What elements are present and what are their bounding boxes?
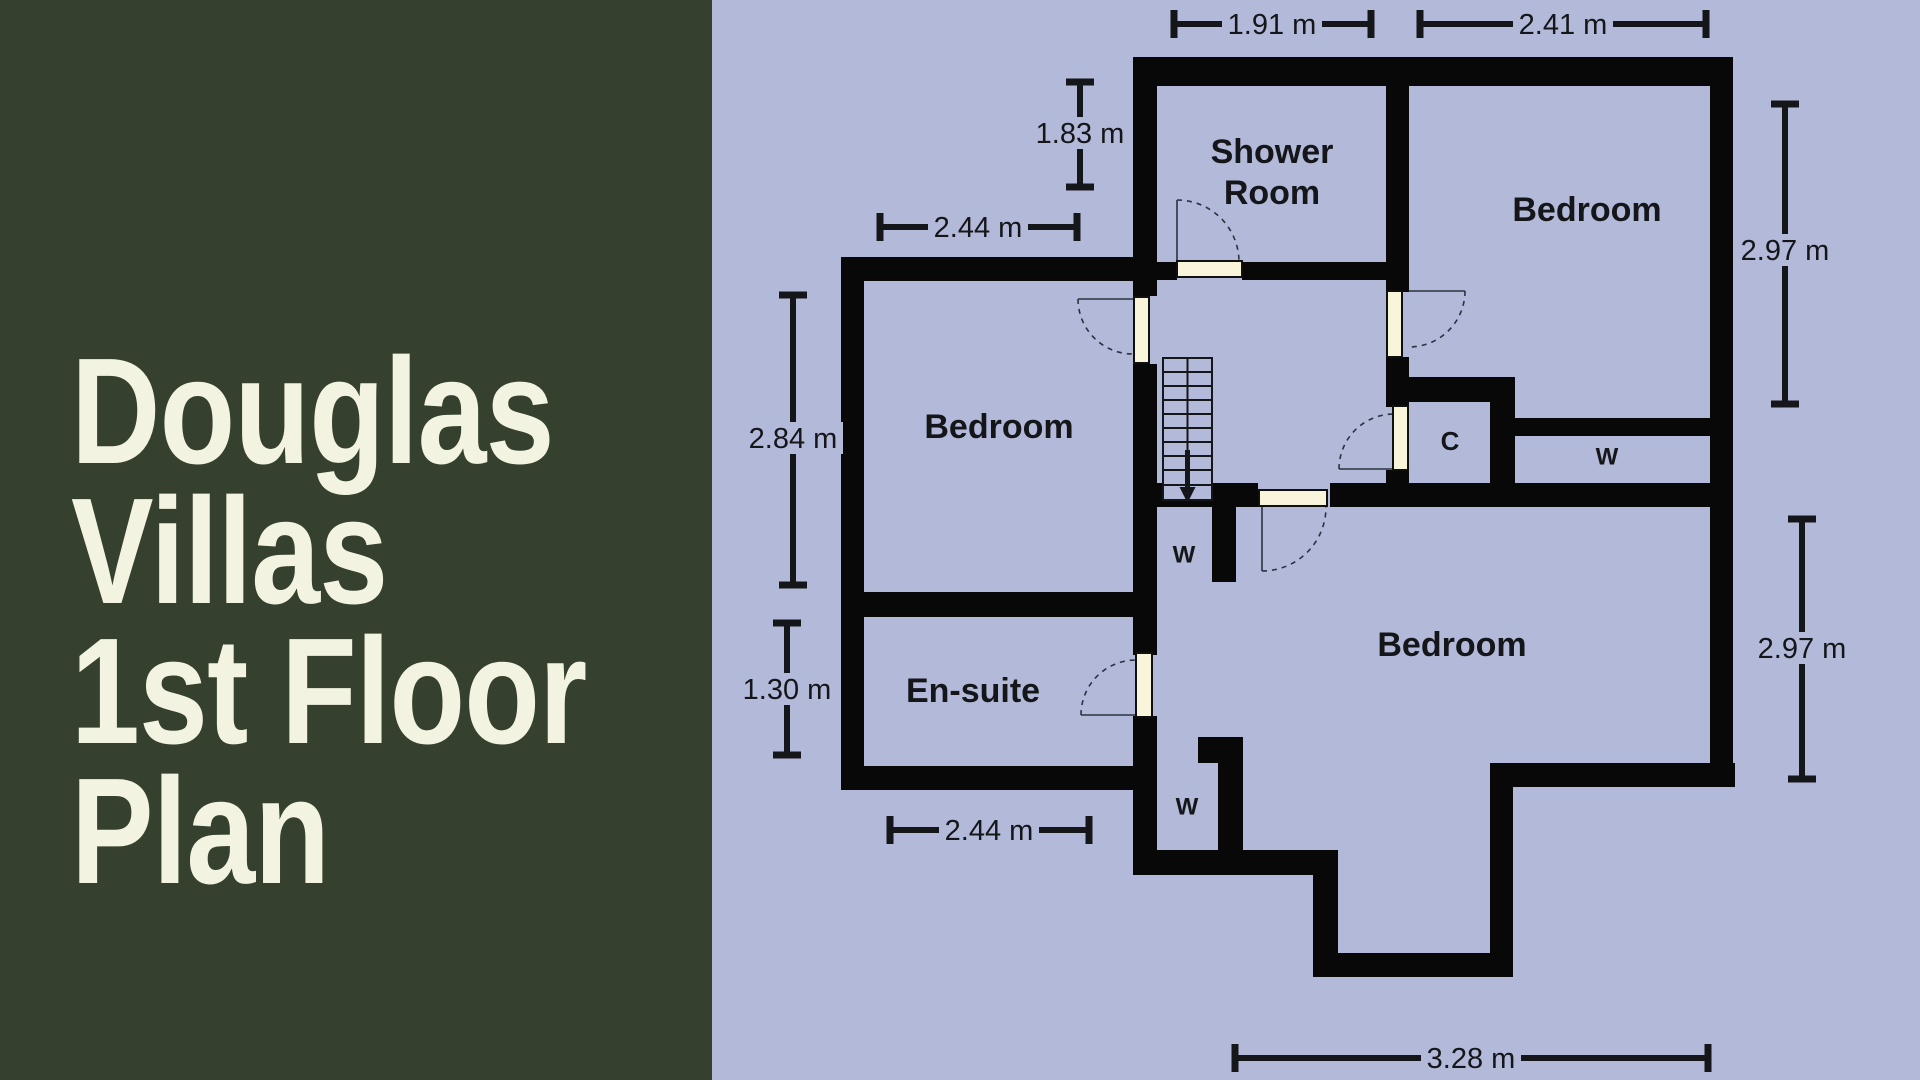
ensuite-door bbox=[1136, 653, 1152, 717]
dimension-label: 2.41 m bbox=[1519, 9, 1608, 41]
dim-bedroom-bottom-depth: 2.97 m bbox=[1752, 519, 1852, 779]
dim-shower-depth: 1.83 m bbox=[1030, 82, 1130, 187]
dimension-label: 3.28 m bbox=[1427, 1043, 1516, 1075]
dimension-label: 1.91 m bbox=[1228, 9, 1317, 41]
dim-bedroom-right-depth: 2.97 m bbox=[1735, 104, 1835, 404]
bedroom-right-label: Bedroom bbox=[1512, 191, 1661, 229]
dimension-label: 1.30 m bbox=[743, 674, 832, 706]
dim-bedroom-right-width: 2.41 m bbox=[1420, 7, 1706, 41]
shower-room-label-line2: Room bbox=[1224, 174, 1320, 212]
wardrobe-right-label: W bbox=[1596, 444, 1619, 471]
closet-label: C bbox=[1441, 426, 1460, 456]
bedroom-left-door bbox=[1134, 297, 1149, 363]
shower-room-label-line1: Shower bbox=[1211, 133, 1334, 171]
ensuite-label: En-suite bbox=[906, 672, 1040, 710]
dim-bedroom-left-width: 2.44 m bbox=[880, 210, 1077, 244]
dimension-label: 2.84 m bbox=[749, 423, 838, 455]
bedroom-left-label: Bedroom bbox=[924, 408, 1073, 446]
dimension-label: 2.97 m bbox=[1741, 235, 1830, 267]
dimension-label: 2.44 m bbox=[945, 815, 1034, 847]
bedroom-bottom-door bbox=[1259, 490, 1327, 506]
dimension-label: 2.97 m bbox=[1758, 633, 1847, 665]
dim-bedroom-bottom-width: 3.28 m bbox=[1235, 1041, 1708, 1075]
dim-bedroom-left-depth: 2.84 m bbox=[743, 295, 843, 585]
dimension-label: 1.83 m bbox=[1036, 118, 1125, 150]
closet-door bbox=[1393, 406, 1408, 470]
bedroom-bottom-label: Bedroom bbox=[1377, 626, 1526, 664]
dim-ensuite-depth: 1.30 m bbox=[737, 623, 837, 755]
wardrobe-lower-label: W bbox=[1176, 794, 1199, 821]
stairs bbox=[1163, 358, 1212, 503]
dim-shower-width: 1.91 m bbox=[1174, 7, 1371, 41]
wardrobe-upper-label: W bbox=[1173, 542, 1196, 569]
dimension-label: 2.44 m bbox=[934, 212, 1023, 244]
shower-door bbox=[1177, 261, 1242, 277]
bedroom-right-door bbox=[1387, 291, 1402, 357]
dim-ensuite-width: 2.44 m bbox=[890, 813, 1089, 847]
floor-plan: ShowerRoomBedroomBedroomEn-suiteBedroomC… bbox=[0, 0, 1920, 1080]
